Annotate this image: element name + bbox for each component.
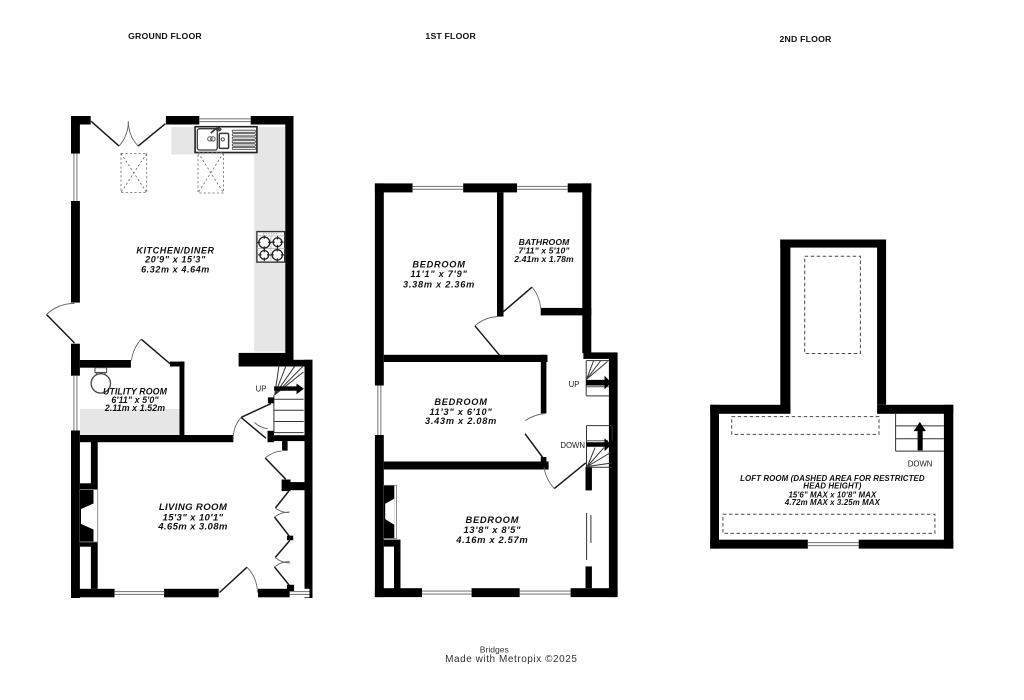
- svg-text:2ND FLOOR: 2ND FLOOR: [780, 34, 833, 44]
- svg-text:GROUND FLOOR: GROUND FLOOR: [128, 31, 202, 41]
- svg-text:UP: UP: [569, 380, 580, 389]
- svg-text:DOWN: DOWN: [560, 441, 585, 450]
- svg-text:1ST FLOOR: 1ST FLOOR: [425, 31, 476, 41]
- svg-text:3.43m x 2.08m: 3.43m x 2.08m: [425, 416, 497, 426]
- svg-text:DOWN: DOWN: [908, 460, 933, 469]
- svg-text:BEDROOM: BEDROOM: [434, 397, 487, 407]
- svg-text:6.32m x 4.64m: 6.32m x 4.64m: [141, 264, 210, 274]
- svg-text:3.38m x 2.36m: 3.38m x 2.36m: [403, 279, 475, 289]
- svg-text:4.72m MAX x 3.25m MAX: 4.72m MAX x 3.25m MAX: [784, 498, 881, 507]
- svg-text:UP: UP: [256, 385, 267, 394]
- svg-text:4.16m x 2.57m: 4.16m x 2.57m: [455, 534, 528, 545]
- svg-text:4.65m x 3.08m: 4.65m x 3.08m: [157, 522, 228, 533]
- svg-text:Bridges: Bridges: [480, 644, 509, 654]
- svg-text:20'9" x 15'3": 20'9" x 15'3": [144, 255, 206, 265]
- svg-text:LIVING ROOM: LIVING ROOM: [159, 502, 228, 513]
- svg-text:HEAD HEIGHT): HEAD HEIGHT): [803, 482, 861, 491]
- svg-text:2.41m x 1.78m: 2.41m x 1.78m: [513, 254, 574, 264]
- svg-text:11'1" x 7'9": 11'1" x 7'9": [410, 269, 467, 279]
- svg-text:Made with Metropix ©2025: Made with Metropix ©2025: [445, 654, 577, 665]
- svg-text:BEDROOM: BEDROOM: [412, 259, 465, 269]
- svg-text:2.11m x 1.52m: 2.11m x 1.52m: [104, 403, 165, 413]
